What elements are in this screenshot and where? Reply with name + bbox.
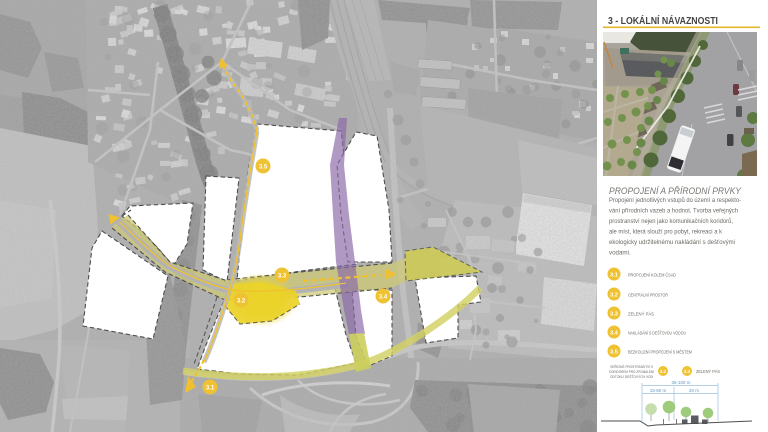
svg-text:15-60 m: 15-60 m [650, 388, 667, 393]
svg-text:KORIDOREM PRO ZPOMALENÍ: KORIDOREM PRO ZPOMALENÍ [609, 370, 655, 374]
svg-text:Propojení jednotlivých vstupů: Propojení jednotlivých vstupů do území a… [609, 197, 741, 204]
svg-text:ale míst, která slouží pro pob: ale míst, která slouží pro pobyt, rekrea… [609, 229, 723, 236]
svg-text:PROPOJENÍ KOLEM ČSAD: PROPOJENÍ KOLEM ČSAD [628, 272, 676, 279]
svg-text:20 m: 20 m [689, 388, 699, 393]
svg-text:3.2: 3.2 [237, 299, 246, 305]
svg-text:CENTRÁLNÍ PROSTOR: CENTRÁLNÍ PROSTOR [628, 292, 668, 299]
svg-text:ekologicky udržitelnému naklád: ekologicky udržitelnému nakládání s dešť… [609, 239, 735, 246]
svg-text:3.2: 3.2 [660, 369, 667, 374]
svg-text:VEŘEJNÉ PROSTRANSTVÍ S: VEŘEJNÉ PROSTRANSTVÍ S [610, 364, 653, 369]
svg-text:vodami.: vodami. [609, 250, 631, 257]
svg-text:3.5: 3.5 [610, 349, 618, 355]
svg-text:prostranství nejen jako komuni: prostranství nejen jako komunikačních ko… [609, 218, 733, 225]
svg-text:3.3: 3.3 [610, 311, 618, 317]
svg-text:3 - LOKÁLNÍ NÁVAZNOSTI: 3 - LOKÁLNÍ NÁVAZNOSTI [608, 14, 718, 27]
svg-text:ZELENÝ PÁS: ZELENÝ PÁS [628, 311, 654, 318]
svg-text:3.5: 3.5 [259, 165, 268, 171]
svg-text:PROPOJENÍ A PŘÍRODNÍ PRVKY: PROPOJENÍ A PŘÍRODNÍ PRVKY [609, 186, 742, 197]
svg-text:3.3: 3.3 [278, 274, 287, 280]
svg-text:3.3: 3.3 [684, 369, 691, 374]
svg-text:3.4: 3.4 [379, 295, 388, 301]
svg-text:3.1: 3.1 [610, 272, 618, 278]
svg-text:35-100 m: 35-100 m [671, 380, 690, 385]
svg-text:ZELENÝ PÁS: ZELENÝ PÁS [696, 369, 720, 374]
svg-text:ODTOKU DEŠŤOVÝCH VOD: ODTOKU DEŠŤOVÝCH VOD [610, 374, 653, 379]
svg-text:3.1: 3.1 [206, 386, 215, 392]
svg-text:vání přírodních vazeb a hodnot: vání přírodních vazeb a hodnot. Tvorba v… [609, 208, 739, 215]
svg-text:3.2: 3.2 [610, 292, 618, 298]
svg-text:3.4: 3.4 [610, 330, 619, 336]
